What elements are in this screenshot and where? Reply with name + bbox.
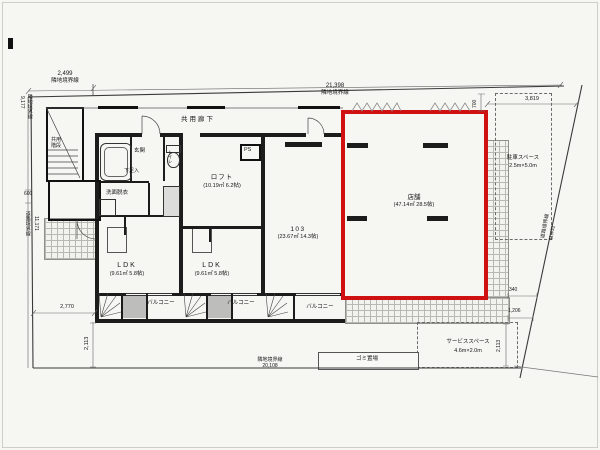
wall	[209, 228, 211, 242]
label-shop-area: (47.14㎡ 28.5帖)	[380, 202, 448, 208]
dim-2770: 2,770	[50, 304, 84, 310]
wall	[163, 133, 165, 181]
label-toilet: トイレ	[168, 150, 173, 164]
label-boundary-top-left: 隣地境界線	[36, 78, 94, 84]
label-balcony-1: バルコニー	[144, 300, 178, 306]
label-parking-size: 2.5m×5.0m	[499, 163, 547, 169]
sliding-door	[296, 293, 340, 296]
door-opening	[183, 133, 200, 137]
dim-1206: 1,206	[508, 309, 521, 315]
label-corridor: 共用廊下	[170, 116, 226, 123]
dim-3819: 3,819	[512, 96, 552, 102]
wall	[95, 181, 149, 183]
label-entrance: 玄関	[134, 148, 145, 154]
label-service-name: サービススペース	[438, 339, 498, 345]
walkway-bottom-hatch	[345, 297, 510, 324]
dim-600: 600	[24, 192, 32, 198]
dim-340: 340	[509, 288, 517, 294]
meter-box	[48, 180, 101, 221]
floor-plan-canvas: 2,499 隣地境界線 21,398 隣地境界線 9,177 隣地境界線 道路境…	[0, 0, 600, 450]
label-boundary-left-lower: 道路境界線	[24, 211, 30, 236]
label-common-stairs: 共用階段	[51, 138, 62, 150]
wall	[146, 293, 148, 322]
label-ldk1-name: LDK	[107, 262, 147, 270]
dim-top-left: 2,499	[40, 71, 90, 78]
label-ldk1-area: (9.61㎡ 5.8帖)	[99, 271, 155, 277]
sliding-door	[211, 293, 257, 296]
dim-right: 11,431	[549, 225, 557, 241]
label-shop-name: 店舗	[398, 194, 430, 201]
label-ldk2-area: (9.61㎡ 5.8帖)	[184, 271, 240, 277]
label-loft-name: ロフト	[202, 174, 242, 181]
label-garbage: ゴミ置場	[340, 356, 394, 362]
dim-left-upper: 9,177	[18, 96, 24, 109]
sliding-door	[126, 293, 172, 296]
wall	[148, 183, 150, 216]
dim-2113-left: 2,113	[84, 337, 90, 350]
wall	[293, 293, 295, 322]
label-103-area: (23.67㎡ 14.3帖)	[266, 234, 330, 240]
dim-left-lower: 11,171	[32, 216, 38, 231]
label-service-size: 4.6m×2.0m	[444, 348, 492, 354]
dim-top: 21,398	[305, 83, 365, 90]
wall	[206, 293, 208, 322]
kitchen-counter	[163, 186, 180, 217]
scan-mark	[8, 38, 13, 49]
wall	[124, 217, 126, 235]
label-ps: PS	[244, 147, 251, 153]
dim-bottom: 20,108	[250, 364, 290, 370]
wall	[231, 293, 233, 322]
dim-700: 700	[473, 100, 479, 108]
wall-stub	[285, 142, 322, 147]
wall	[95, 319, 345, 323]
door-opening	[142, 133, 160, 137]
label-parking-name: 駐車スペース	[499, 155, 547, 161]
label-boundary-left-upper: 隣地境界線	[26, 94, 32, 119]
void-area-1	[122, 296, 146, 318]
label-loft-area: (10.19㎡ 6.2帖)	[190, 183, 254, 189]
label-103-name: 103	[280, 226, 316, 233]
label-balcony-2: バルコニー	[224, 300, 258, 306]
entrance-porch-hatch	[44, 218, 99, 260]
label-washroom: 洗面脱衣	[106, 190, 128, 196]
label-shoe-box: 下足入	[124, 169, 139, 175]
wall	[121, 293, 123, 322]
label-boundary-top: 隣地境界線	[300, 90, 370, 96]
wall	[261, 133, 265, 295]
label-ldk2-name: LDK	[192, 262, 232, 270]
washer-pan	[99, 199, 116, 216]
wall	[179, 226, 263, 229]
label-balcony-3: バルコニー	[300, 304, 340, 310]
door-opening	[306, 133, 324, 137]
corridor-edge	[46, 106, 343, 109]
